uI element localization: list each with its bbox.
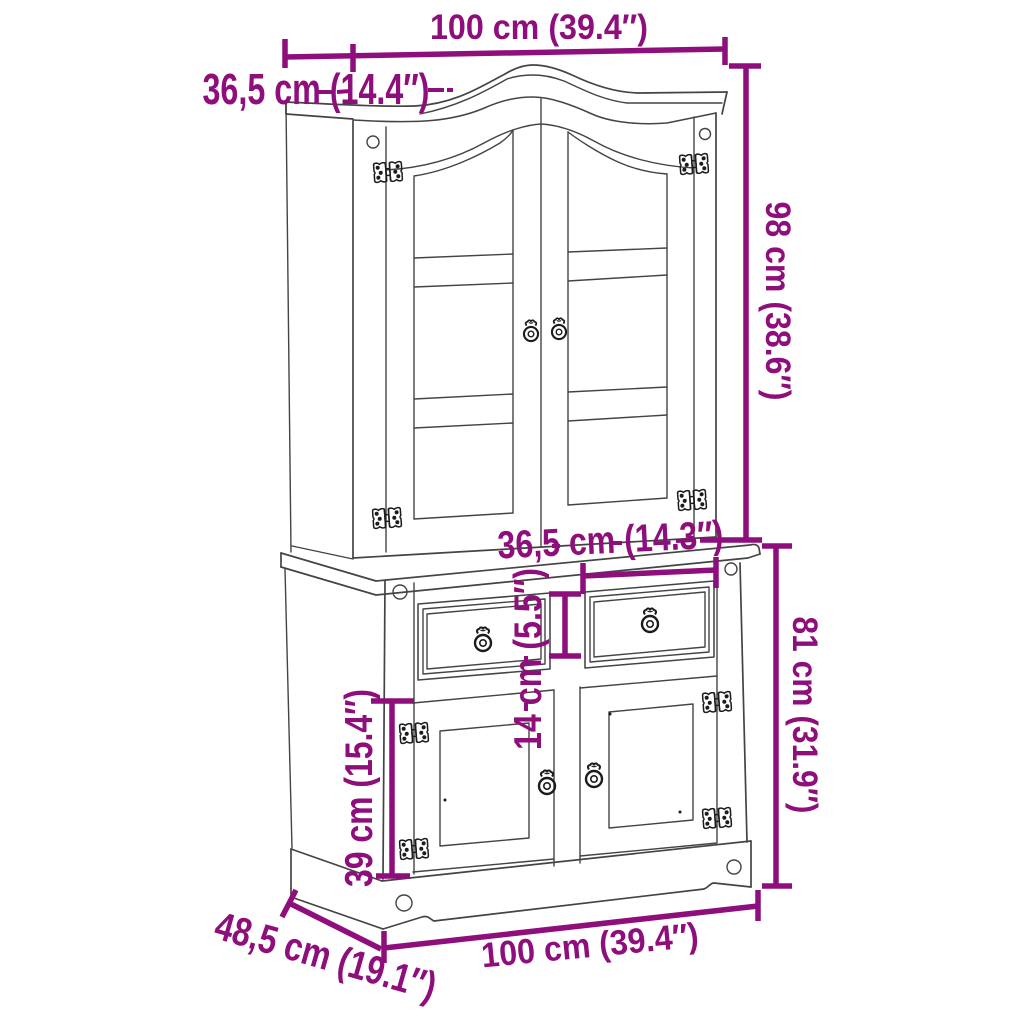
svg-text:100 cm (39.4″): 100 cm (39.4″) bbox=[430, 8, 648, 47]
svg-text:81 cm (31.9″): 81 cm (31.9″) bbox=[785, 617, 824, 814]
svg-text:98 cm (38.6″): 98 cm (38.6″) bbox=[758, 202, 797, 401]
svg-text:14 cm (5.5″): 14 cm (5.5″) bbox=[507, 568, 550, 750]
svg-text:39 cm (15.4″): 39 cm (15.4″) bbox=[338, 689, 381, 887]
svg-text:36,5 cm (14.4″): 36,5 cm (14.4″) bbox=[203, 65, 430, 114]
